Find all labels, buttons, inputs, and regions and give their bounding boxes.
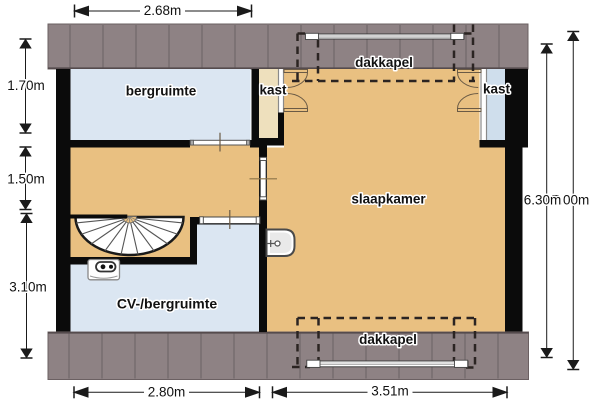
svg-text:CV-/bergruimte: CV-/bergruimte — [117, 296, 218, 312]
svg-text:dakkapel: dakkapel — [355, 55, 413, 70]
svg-text:6.30m: 6.30m — [524, 193, 562, 208]
svg-text:1.70m: 1.70m — [7, 78, 45, 93]
svg-text:1.50m: 1.50m — [7, 172, 45, 187]
svg-text:kast: kast — [483, 82, 511, 97]
svg-text:bergruimte: bergruimte — [126, 84, 197, 99]
svg-text:dakkapel: dakkapel — [359, 332, 417, 347]
svg-text:2.80m: 2.80m — [148, 385, 186, 400]
svg-text:3.51m: 3.51m — [371, 384, 409, 399]
svg-text:kast: kast — [259, 83, 287, 98]
svg-text:3.10m: 3.10m — [9, 280, 47, 295]
svg-text:2.68m: 2.68m — [144, 3, 182, 18]
svg-text:slaapkamer: slaapkamer — [351, 192, 426, 207]
